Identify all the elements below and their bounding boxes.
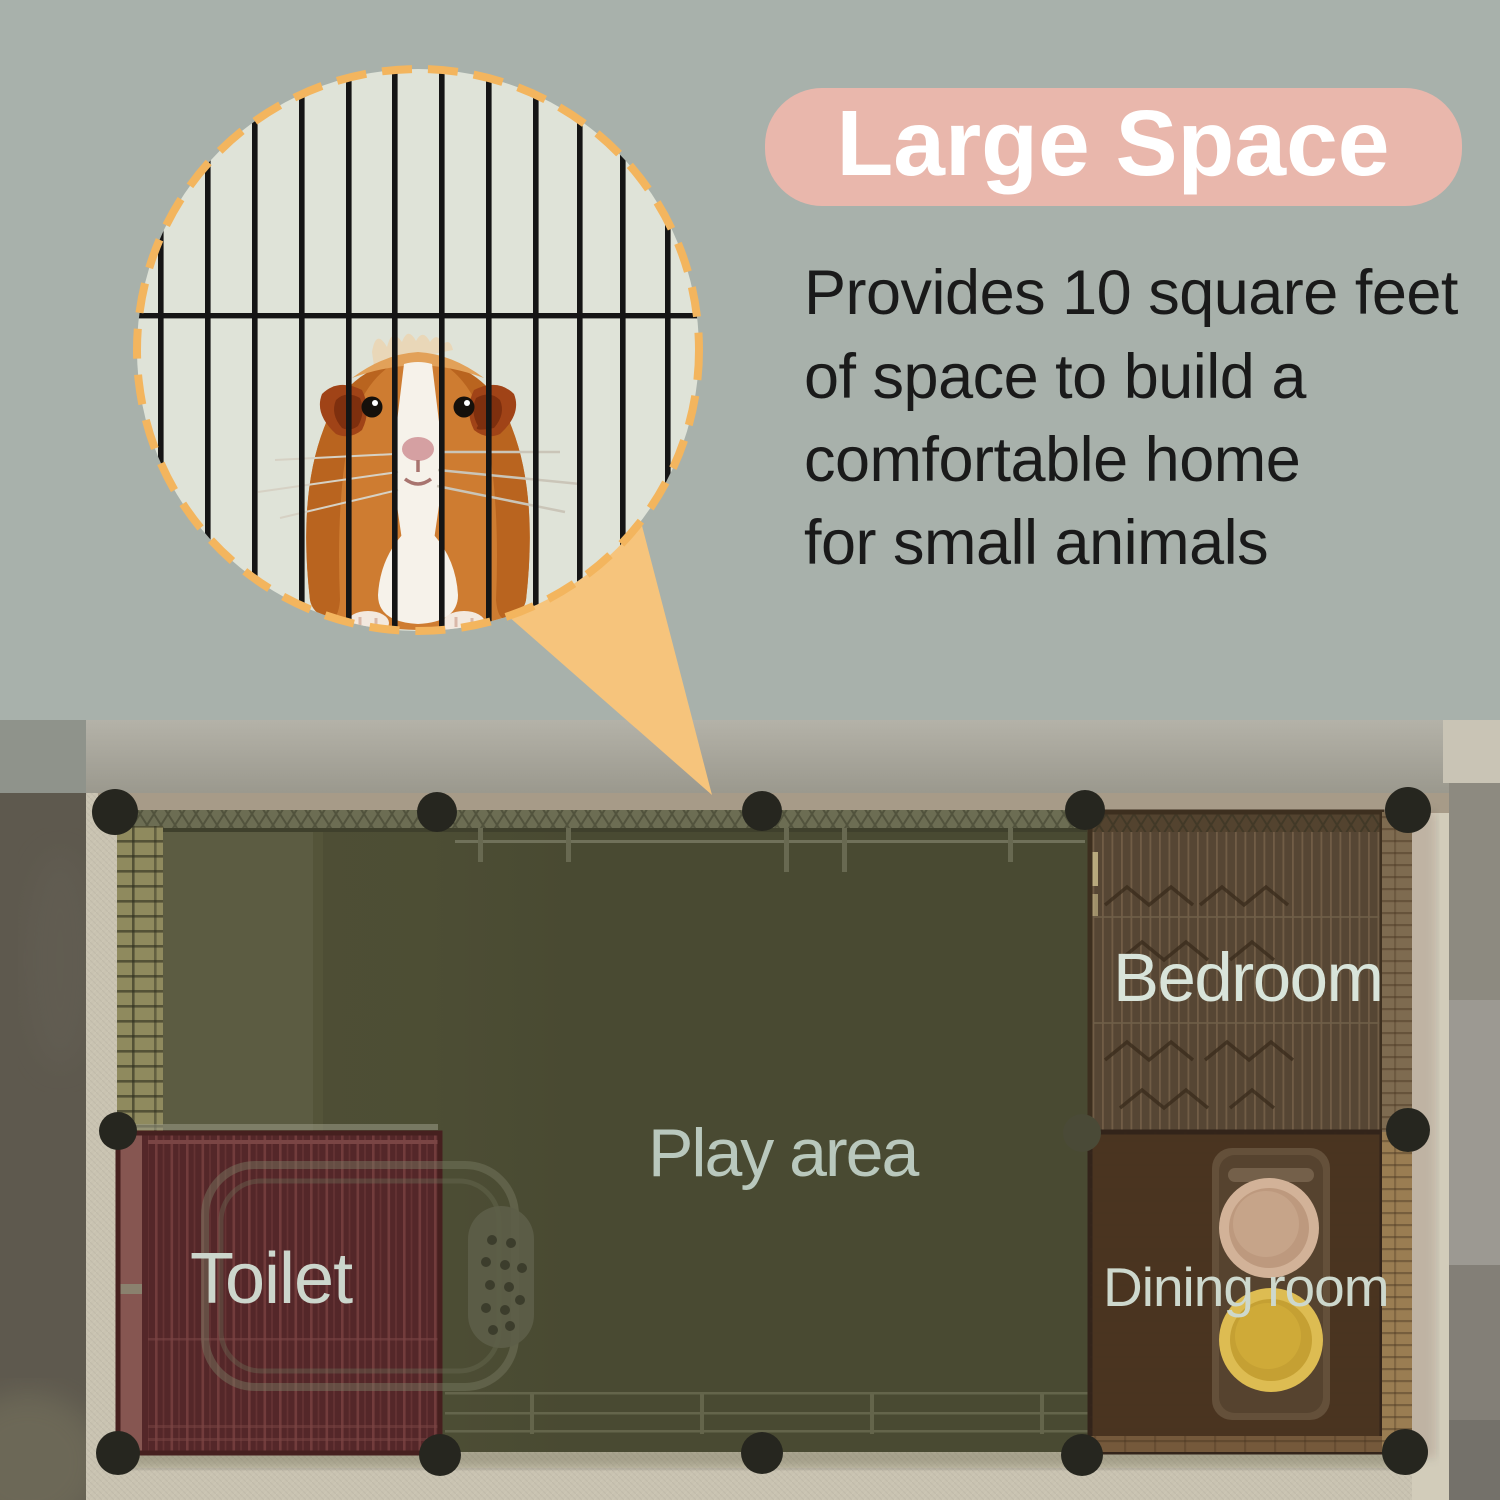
svg-text:comfortable home: comfortable home [804,425,1300,495]
svg-text:for small animals: for small animals [804,508,1268,578]
svg-text:of space to build a: of space to build a [804,342,1307,412]
svg-text:Provides 10 square feet: Provides 10 square feet [804,258,1459,328]
svg-text:Dining room: Dining room [1103,1256,1389,1318]
svg-text:Toilet: Toilet [190,1239,353,1319]
svg-text:Bedroom: Bedroom [1113,939,1382,1016]
svg-text:Play area: Play area [648,1115,919,1191]
svg-text:Large Space: Large Space [836,91,1389,195]
